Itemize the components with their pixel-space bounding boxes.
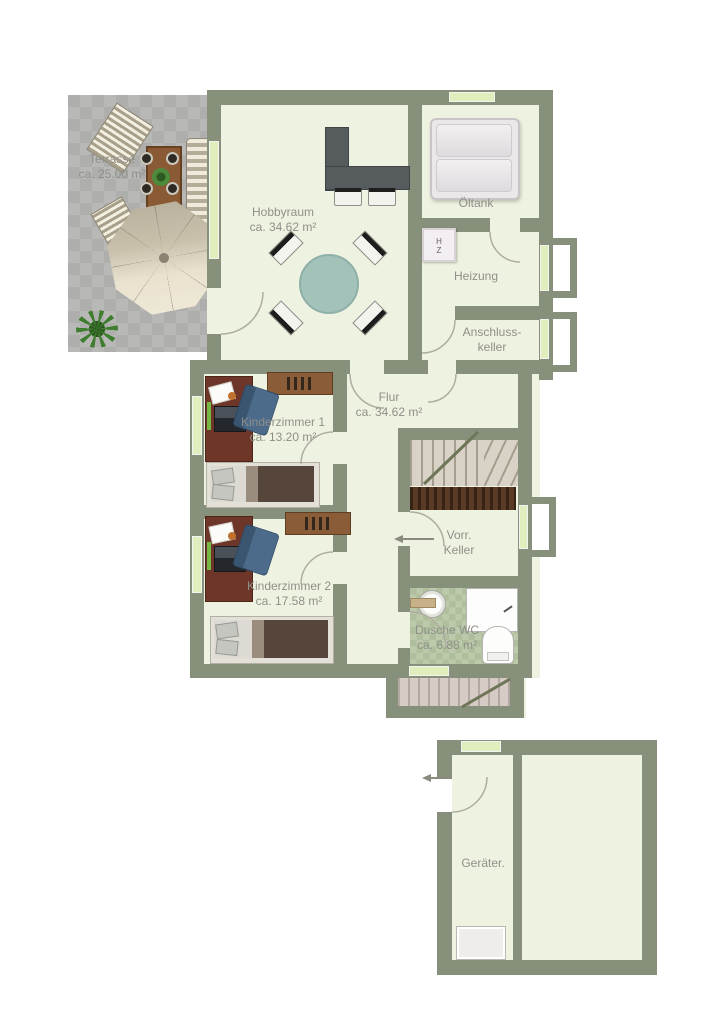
room-name: Flur bbox=[333, 390, 445, 405]
room-label-terrasse: Terrasse ca. 25.00 m² bbox=[56, 152, 168, 182]
room-label-heizung: Heizung bbox=[436, 269, 516, 284]
room-name: Kinderzimmer 2 bbox=[233, 579, 345, 594]
room-name: Keller bbox=[420, 543, 498, 558]
stair-direction-line bbox=[462, 679, 510, 707]
room-name: Öltank bbox=[436, 196, 516, 211]
room-area: ca. 34.62 m² bbox=[227, 220, 339, 235]
room-name: Geräter. bbox=[450, 856, 516, 871]
room-label-duschewc: Dusche WC ca. 6.88 m² bbox=[399, 623, 495, 653]
room-label-vorrkeller: Vorr. Keller bbox=[420, 528, 498, 558]
room-label-hobbyraum: Hobbyraum ca. 34.62 m² bbox=[227, 205, 339, 235]
floor-plan: H Z bbox=[0, 0, 724, 1024]
door-arc bbox=[490, 232, 520, 262]
room-name: Dusche WC bbox=[399, 623, 495, 638]
room-name: keller bbox=[447, 340, 537, 355]
room-area: ca. 25.00 m² bbox=[56, 167, 168, 182]
room-label-oeltank: Öltank bbox=[436, 196, 516, 211]
room-area: ca. 17.58 m² bbox=[233, 594, 345, 609]
stair-direction-line bbox=[424, 432, 478, 484]
room-name: Heizung bbox=[436, 269, 516, 284]
room-area: ca. 34.62 m² bbox=[333, 405, 445, 420]
room-area: ca. 13.20 m² bbox=[227, 430, 339, 445]
door-arc bbox=[221, 292, 263, 334]
room-name: Hobbyraum bbox=[227, 205, 339, 220]
entry-arrow-icon bbox=[394, 535, 403, 543]
room-label-kinderzimmer1: Kinderzimmer 1 ca. 13.20 m² bbox=[227, 415, 339, 445]
room-name: Anschluss- bbox=[447, 325, 537, 340]
door-arc bbox=[452, 777, 487, 812]
entry-arrow-icon bbox=[422, 774, 431, 782]
room-name: Kinderzimmer 1 bbox=[227, 415, 339, 430]
room-name: Vorr. bbox=[420, 528, 498, 543]
room-label-kinderzimmer2: Kinderzimmer 2 ca. 17.58 m² bbox=[233, 579, 345, 609]
room-area: ca. 6.88 m² bbox=[399, 638, 495, 653]
room-label-anschlusskeller: Anschluss- keller bbox=[447, 325, 537, 355]
room-name: Terrasse bbox=[56, 152, 168, 167]
room-label-flur: Flur ca. 34.62 m² bbox=[333, 390, 445, 420]
room-label-geraeteraum: Geräter. bbox=[450, 856, 516, 871]
